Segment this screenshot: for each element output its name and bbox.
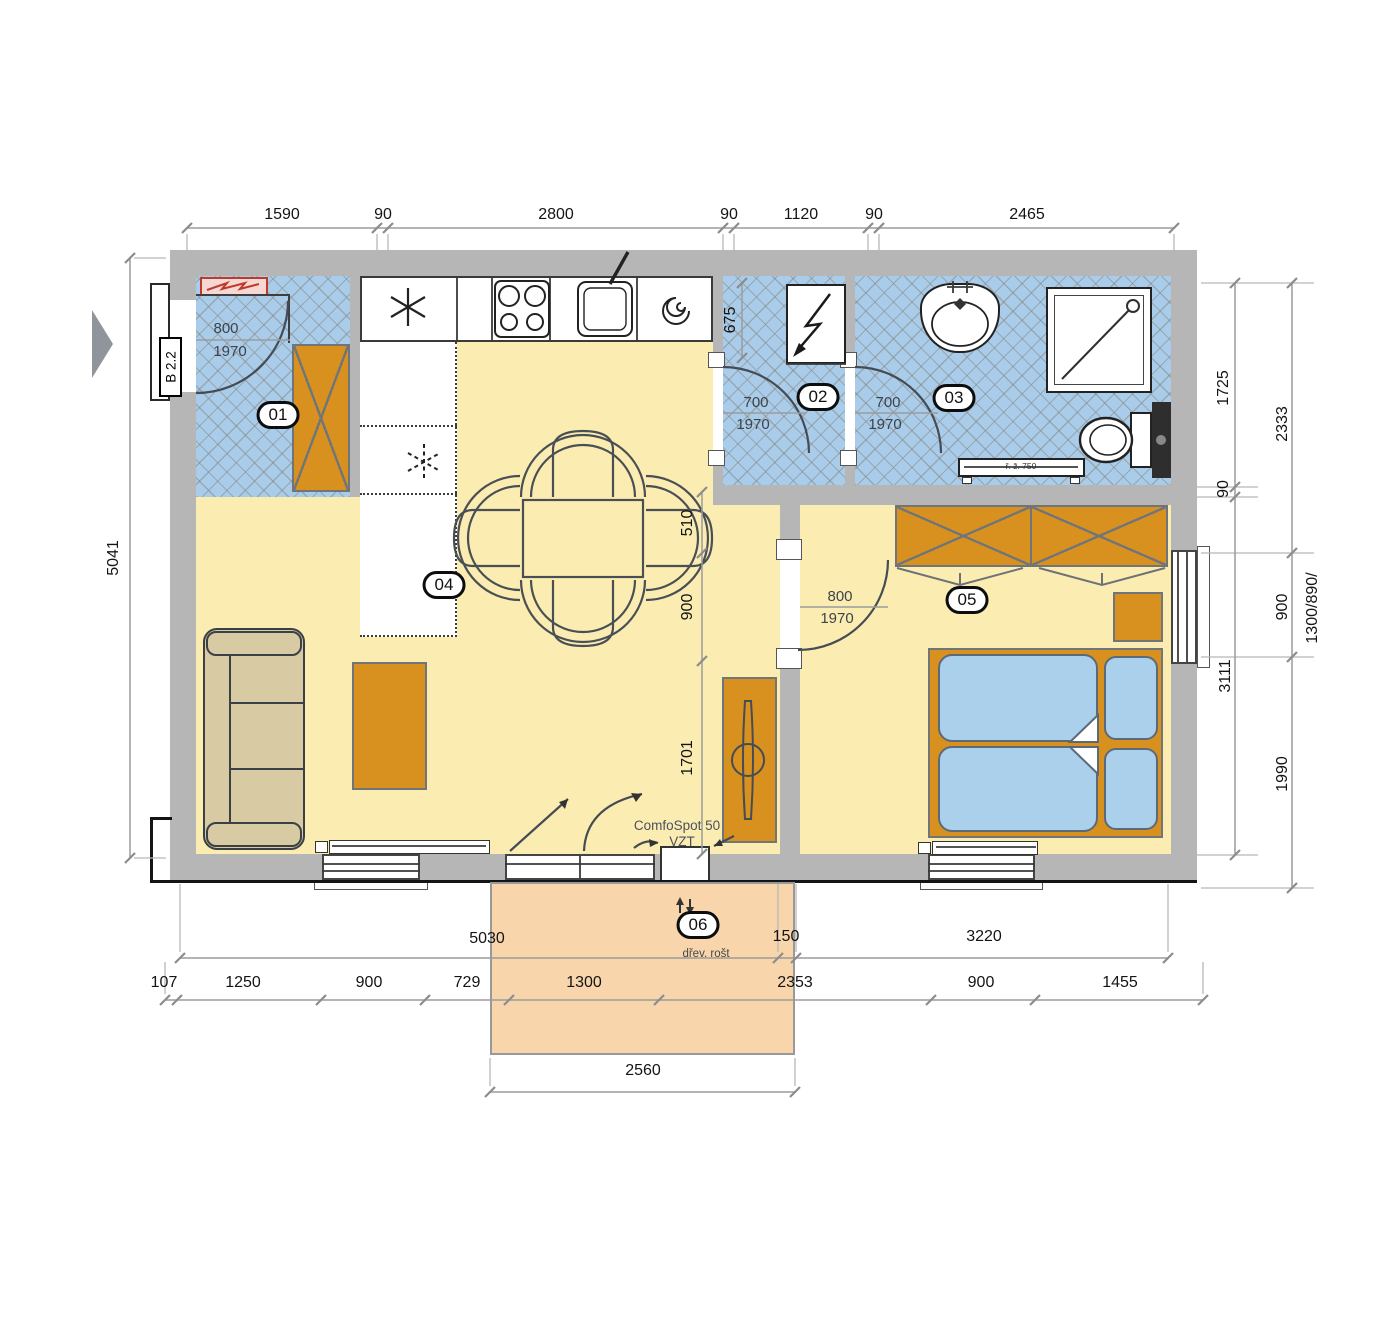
- room-label-toilet: 02: [797, 383, 840, 411]
- dim-bottom2-3: 900: [356, 974, 383, 992]
- dim-bottom2-5: 1300: [566, 974, 602, 992]
- dim-bottom2-2: 1250: [225, 974, 261, 992]
- sofa: [203, 628, 305, 850]
- dim-top-4: 90: [720, 206, 738, 224]
- bathroom-door-jamb-bottom: [840, 450, 857, 466]
- nightstand: [1113, 592, 1163, 642]
- dim-top-6: 90: [865, 206, 883, 224]
- dim-center-3: 1701: [679, 740, 697, 776]
- toilet-flush-module: [1152, 402, 1171, 478]
- dim-top-7: 2465: [1009, 206, 1045, 224]
- sofa-cushion-line2: [231, 768, 303, 770]
- dim-top-5: 1120: [784, 206, 818, 224]
- living-window: [322, 854, 420, 880]
- toilet-door-jamb-bottom: [708, 450, 725, 466]
- hall-wardrobe: [292, 344, 350, 492]
- wall-bathroom-bedroom: [713, 485, 1171, 505]
- electrical-panel-icon: [200, 277, 268, 296]
- room-label-living: 04: [423, 571, 466, 599]
- toilet-cistern: [1130, 412, 1152, 468]
- bedroom-door-jamb-bottom: [776, 648, 802, 669]
- dim-top-3: 2800: [538, 206, 574, 224]
- sofa-armrest-top: [206, 631, 302, 656]
- tv-cabinet: [722, 677, 777, 843]
- dim-right-outer-1: 2333: [1274, 406, 1292, 442]
- ventilation-label-line1: ComfoSpot 50: [634, 818, 720, 833]
- dim-right-outer-2: 900: [1274, 594, 1292, 621]
- appliance-reserve-divider: [360, 425, 457, 427]
- bedroom-wardrobe-left: [895, 505, 1032, 567]
- dim-toilet-depth: 675: [722, 307, 740, 334]
- ground-step-horizontal: [150, 817, 172, 820]
- appliance-reserve-divider2: [360, 493, 457, 495]
- dim-bottom1-2: 150: [773, 928, 800, 946]
- duvet-bottom: [938, 746, 1098, 832]
- entrance-door-width: 800: [213, 320, 238, 337]
- dim-right-inner-3: 3111: [1217, 659, 1235, 692]
- duvet-top: [938, 654, 1098, 742]
- room-label-terrace: 06: [677, 911, 720, 939]
- wall-top: [170, 250, 1197, 276]
- bathroom-door-height: 1970: [868, 416, 901, 433]
- bathroom-door-width: 700: [875, 394, 900, 411]
- bedroom-wardrobe-right: [1030, 505, 1168, 567]
- living-radiator: [329, 840, 490, 854]
- room-label-bedroom: 05: [946, 586, 989, 614]
- dim-center-2: 900: [679, 594, 697, 621]
- dim-left: 5041: [105, 540, 123, 576]
- dim-bottom2-7: 900: [968, 974, 995, 992]
- bedroom-door-opening: [780, 560, 800, 650]
- bathroom-door-opening: [845, 368, 855, 452]
- dim-right-inner-1: 1725: [1215, 370, 1233, 406]
- wall-hall-kitchen: [350, 276, 360, 497]
- towel-radiator-foot-right: [1070, 477, 1080, 484]
- bedroom-door-jamb-top: [776, 539, 802, 560]
- dim-bottom2-8: 1455: [1102, 974, 1138, 992]
- ground-step-vertical: [150, 817, 153, 883]
- coffee-table: [352, 662, 427, 790]
- dim-bottom2-1: 107: [151, 974, 178, 992]
- toilet-door-height: 1970: [736, 416, 769, 433]
- bedroom-side-window: [1171, 550, 1197, 664]
- bedroom-window: [928, 854, 1035, 880]
- towel-radiator-foot-left: [962, 477, 972, 484]
- balcony-door: [505, 854, 655, 880]
- dim-top-2: 90: [374, 206, 392, 224]
- terrace-floor-note: dřev. rošt: [682, 948, 729, 960]
- ventilation-label-line2: VZT: [669, 834, 695, 849]
- living-radiator-valve: [315, 841, 328, 853]
- bedroom-radiator-valve: [918, 842, 931, 854]
- dim-bottom1-1: 5030: [469, 930, 505, 948]
- dim-right-inner-2: 90: [1215, 480, 1233, 498]
- shower-tray-inner: [1054, 295, 1144, 385]
- sofa-backrest-line: [229, 634, 231, 844]
- sofa-cushion-line1: [231, 702, 303, 704]
- room-label-hall: 01: [257, 401, 300, 429]
- towel-radiator-note: ř. ž. 750: [1006, 461, 1037, 471]
- sofa-armrest-bottom: [206, 822, 302, 847]
- bedroom-door-height: 1970: [820, 610, 853, 627]
- bedroom-door-width: 800: [827, 588, 852, 605]
- terrace: [490, 882, 795, 1055]
- toilet-door-width: 700: [743, 394, 768, 411]
- entrance-arrow-icon: [92, 310, 113, 378]
- room-label-bathroom: 03: [933, 384, 976, 412]
- kitchen-counter: [360, 276, 713, 342]
- dim-bottom2-6: 2353: [777, 974, 813, 992]
- dim-terrace-width: 2560: [625, 1062, 661, 1080]
- bedroom-side-window-sill: [1197, 546, 1210, 668]
- entrance-door-height: 1970: [213, 343, 246, 360]
- entrance-door-code: B 2.2: [163, 351, 178, 383]
- dim-right-window: 1300/890/: [1304, 572, 1322, 643]
- dim-top-1: 1590: [264, 206, 300, 224]
- pillow-bottom: [1104, 748, 1158, 830]
- pillow-top: [1104, 656, 1158, 740]
- toilet-door-opening: [713, 368, 723, 452]
- dim-center-1: 510: [679, 510, 697, 537]
- floor-plan: B 2.2: [0, 0, 1380, 1320]
- toilet-door-jamb-top: [708, 352, 725, 368]
- ventilation-unit: [660, 846, 710, 884]
- water-heater: [786, 284, 846, 364]
- dim-right-outer-3: 1990: [1274, 756, 1292, 792]
- bedroom-radiator: [932, 841, 1038, 855]
- entrance-door-code-tag: B 2.2: [159, 337, 182, 397]
- dim-bottom2-4: 729: [454, 974, 481, 992]
- dim-bottom1-3: 3220: [966, 928, 1002, 946]
